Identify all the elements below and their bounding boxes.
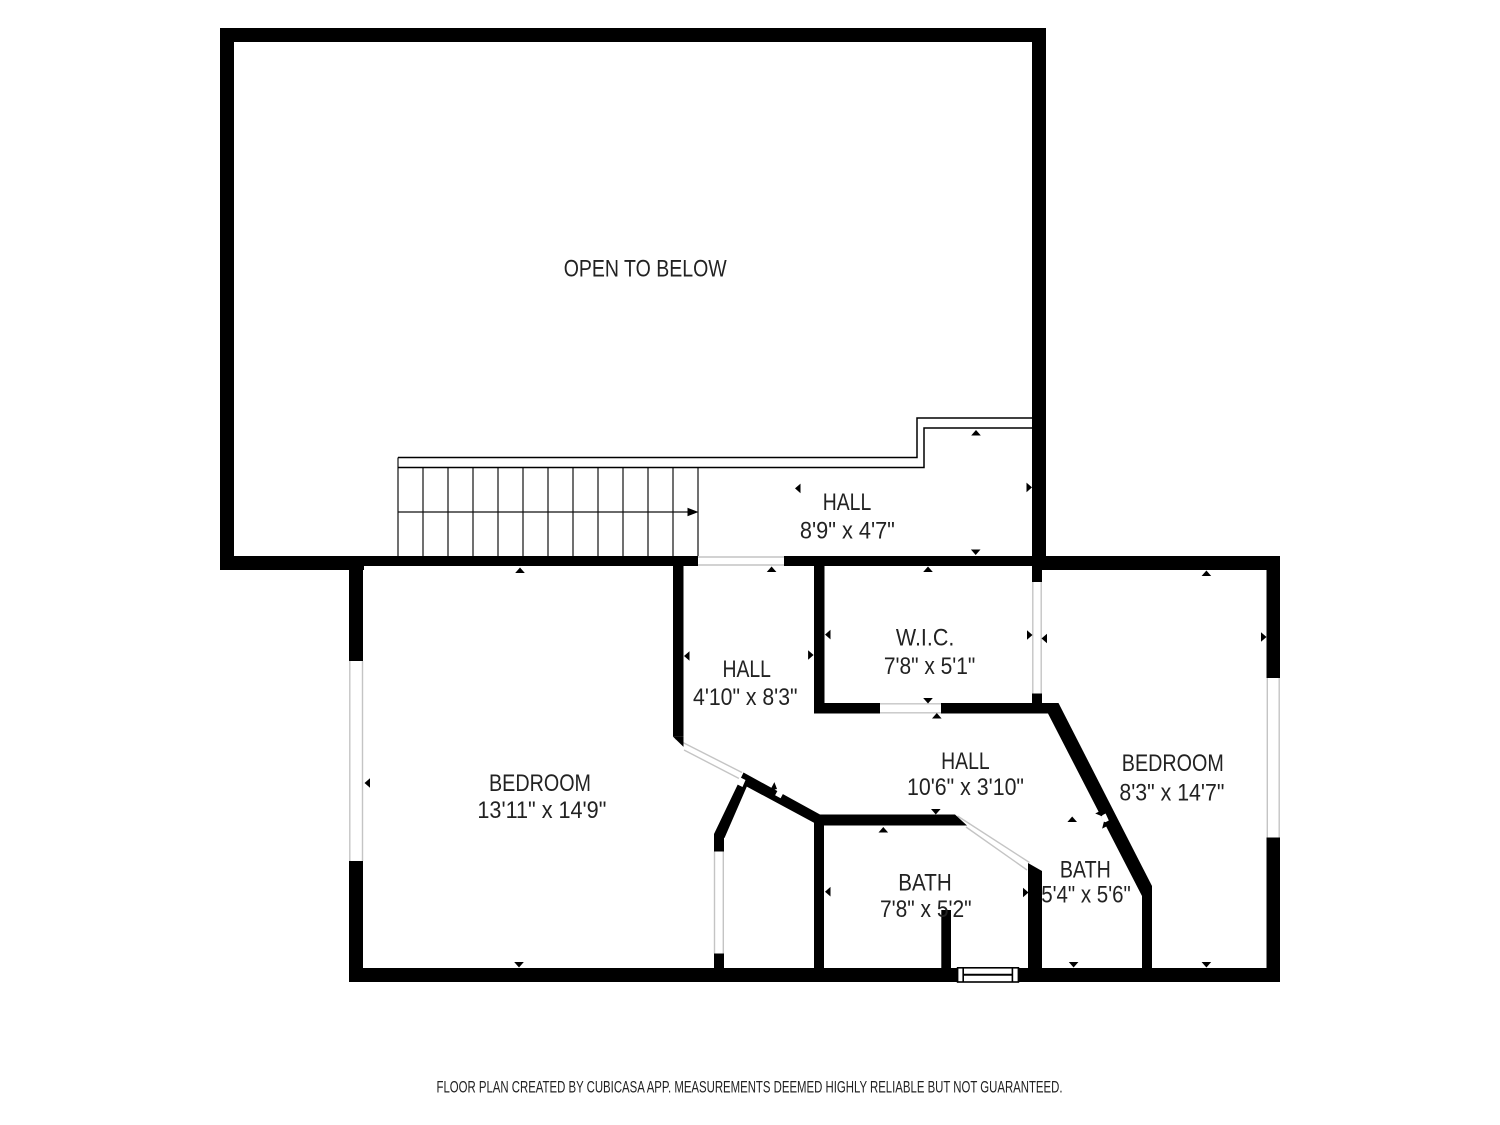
svg-text:13'11" x 14'9": 13'11" x 14'9" xyxy=(477,797,606,824)
svg-text:10'6" x 3'10": 10'6" x 3'10" xyxy=(907,774,1024,801)
svg-text:HALL: HALL xyxy=(722,656,771,683)
svg-text:BATH: BATH xyxy=(1060,857,1111,884)
svg-text:4'10" x 8'3": 4'10" x 8'3" xyxy=(693,684,798,711)
svg-text:OPEN TO BELOW: OPEN TO BELOW xyxy=(564,256,727,283)
svg-text:BEDROOM: BEDROOM xyxy=(1122,750,1224,777)
svg-text:HALL: HALL xyxy=(823,489,872,516)
svg-text:8'3" x 14'7": 8'3" x 14'7" xyxy=(1119,780,1224,807)
svg-text:5'4" x 5'6": 5'4" x 5'6" xyxy=(1041,882,1131,909)
svg-text:FLOOR PLAN CREATED BY CUBICASA: FLOOR PLAN CREATED BY CUBICASA APP. MEAS… xyxy=(437,1079,1063,1097)
svg-text:W.I.C.: W.I.C. xyxy=(896,624,954,651)
svg-text:8'9" x 4'7": 8'9" x 4'7" xyxy=(800,517,895,544)
svg-text:BEDROOM: BEDROOM xyxy=(489,770,591,797)
svg-text:BATH: BATH xyxy=(898,869,951,896)
svg-text:7'8" x 5'2": 7'8" x 5'2" xyxy=(880,896,972,923)
svg-text:7'8" x 5'1": 7'8" x 5'1" xyxy=(884,653,976,680)
svg-text:HALL: HALL xyxy=(941,748,990,775)
